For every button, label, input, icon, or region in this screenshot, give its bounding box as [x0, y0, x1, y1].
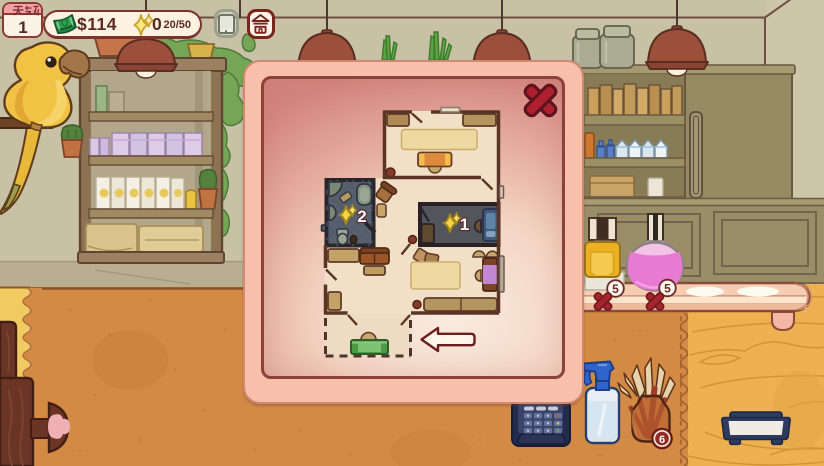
- svg-text:1: 1: [460, 215, 469, 234]
- svg-text:1: 1: [18, 18, 27, 37]
